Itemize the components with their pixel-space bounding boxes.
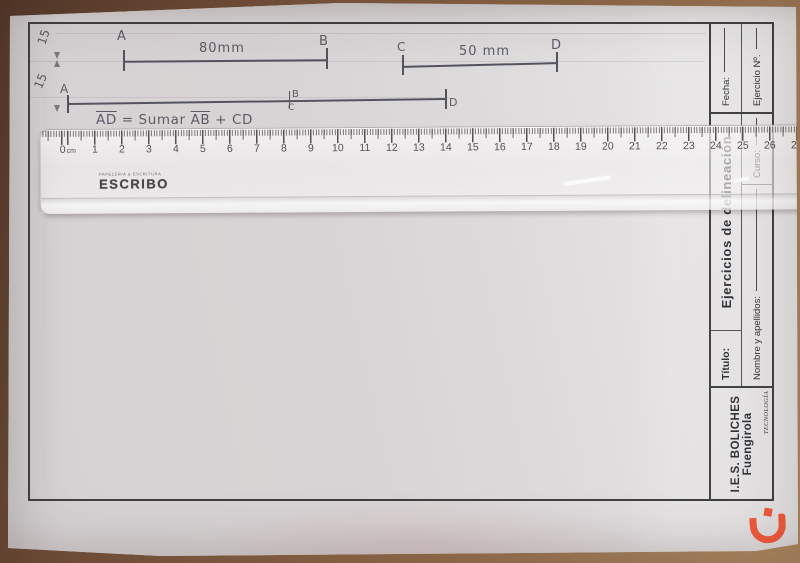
segment-ab-length: 80mm (199, 41, 245, 56)
ruler-unit-label: cm (67, 148, 76, 155)
ruler-number: 20 (598, 140, 618, 152)
ruler-number: 8 (274, 142, 294, 154)
ruler-number: 7 (247, 143, 267, 155)
watermark-bowl (750, 520, 787, 544)
ejercicio-blank-line (756, 28, 757, 49)
result-line-start-tick (67, 95, 69, 113)
formula-annotation: AD = Sumar AB + CD (96, 112, 253, 128)
segment-cd-end-tick (556, 52, 558, 72)
ruler-number: 15 (463, 141, 483, 153)
result-point-a: A (60, 82, 68, 96)
ruler-number: 10 (328, 142, 348, 154)
ruler-number: 23 (679, 140, 699, 152)
ruler-number: 0cm (58, 144, 78, 156)
fecha-label: Fecha: (721, 77, 732, 106)
segment-cd-length: 50 mm (459, 44, 510, 59)
point-label-a: A (117, 29, 126, 44)
formula-mid: = Sumar (122, 112, 186, 128)
nombre-label: Nombre y apellidos: (752, 296, 763, 380)
margin-arrow-icon (54, 105, 60, 112)
ruler-number: 2 (112, 143, 132, 155)
school-name: I.E.S. BOLICHES (730, 396, 742, 493)
ruler-number: 5 (193, 143, 213, 155)
school-city: Fuengirola (742, 413, 754, 476)
margin-guide-line (0, 0, 1, 111)
watermark-dot (763, 508, 772, 517)
formula-rhs1: AB (191, 112, 211, 128)
point-label-b: B (319, 34, 328, 49)
ejercicio-cell: Ejercicio Nº. (742, 24, 773, 113)
ruler-number: 4 (166, 143, 186, 155)
transparent-ruler: 0cm1234567891011121314151617181920212223… (40, 124, 800, 214)
ruler-number: 13 (409, 142, 429, 154)
nombre-cell: Nombre y apellidos: (742, 185, 773, 387)
ruler-number: 24 (706, 140, 726, 152)
result-point-d: D (449, 96, 457, 109)
ruler-number: 3 (139, 143, 159, 155)
ruler-number: 21 (625, 140, 645, 152)
ruler-number: 27 (787, 139, 800, 151)
ruler-scratch (733, 176, 749, 183)
faint-guide-line-top (56, 33, 706, 34)
ruler-brand: PAPELERIA & ESCRITURA ESCRIBO (99, 171, 169, 191)
formula-tail: + CD (215, 112, 253, 128)
result-point-c: C (288, 103, 294, 113)
fecha-blank-line (724, 28, 725, 72)
fecha-cell: Fecha: (711, 24, 741, 113)
result-point-b: B (292, 89, 299, 100)
titulo-label: Título: (720, 348, 732, 380)
margin-arrow-icon (54, 4, 60, 11)
margin-arrow-icon (54, 52, 60, 59)
ejercicio-label: Ejercicio Nº. (752, 54, 763, 106)
ruler-number: 17 (517, 141, 537, 153)
ruler-number: 1 (85, 144, 105, 156)
photo-of-worksheet: Fecha: Ejercicio Nº. Ejercicios de delin… (0, 0, 800, 563)
titulo-cell: Título: (711, 331, 741, 387)
ruler-brand-name: ESCRIBO (99, 176, 169, 191)
school-cell: I.E.S. BOLICHES Fuengirola TECNOLOGÍA (711, 388, 772, 500)
ruler-number: 9 (301, 142, 321, 154)
department-label: TECNOLOGÍA (763, 391, 770, 434)
point-label-c: C (397, 40, 405, 54)
ruler-number: 18 (544, 141, 564, 153)
ruler-number: 26 (760, 139, 780, 151)
watermark-noon-icon (747, 508, 799, 553)
segment-ab-end-tick (326, 48, 328, 69)
segment-cd-start-tick (402, 55, 404, 75)
ruler-number: 6 (220, 143, 240, 155)
ruler-number: 25 (733, 140, 753, 152)
drawing-frame (28, 22, 774, 501)
paper-sheet: Fecha: Ejercicio Nº. Ejercicios de delin… (0, 0, 800, 563)
ruler-number: 14 (436, 141, 456, 153)
ruler-number: 19 (571, 141, 591, 153)
formula-lhs: AD (96, 112, 117, 128)
ruler-scratch (563, 175, 611, 186)
ruler-number: 22 (652, 140, 672, 152)
result-line-end-tick (445, 89, 447, 109)
segment-ab-start-tick (123, 50, 125, 71)
margin-arrow-icon (54, 60, 60, 67)
ruler-number: 12 (382, 142, 402, 154)
ruler-number: 16 (490, 141, 510, 153)
ruler-number: 11 (355, 142, 375, 154)
point-label-d: D (551, 38, 561, 53)
